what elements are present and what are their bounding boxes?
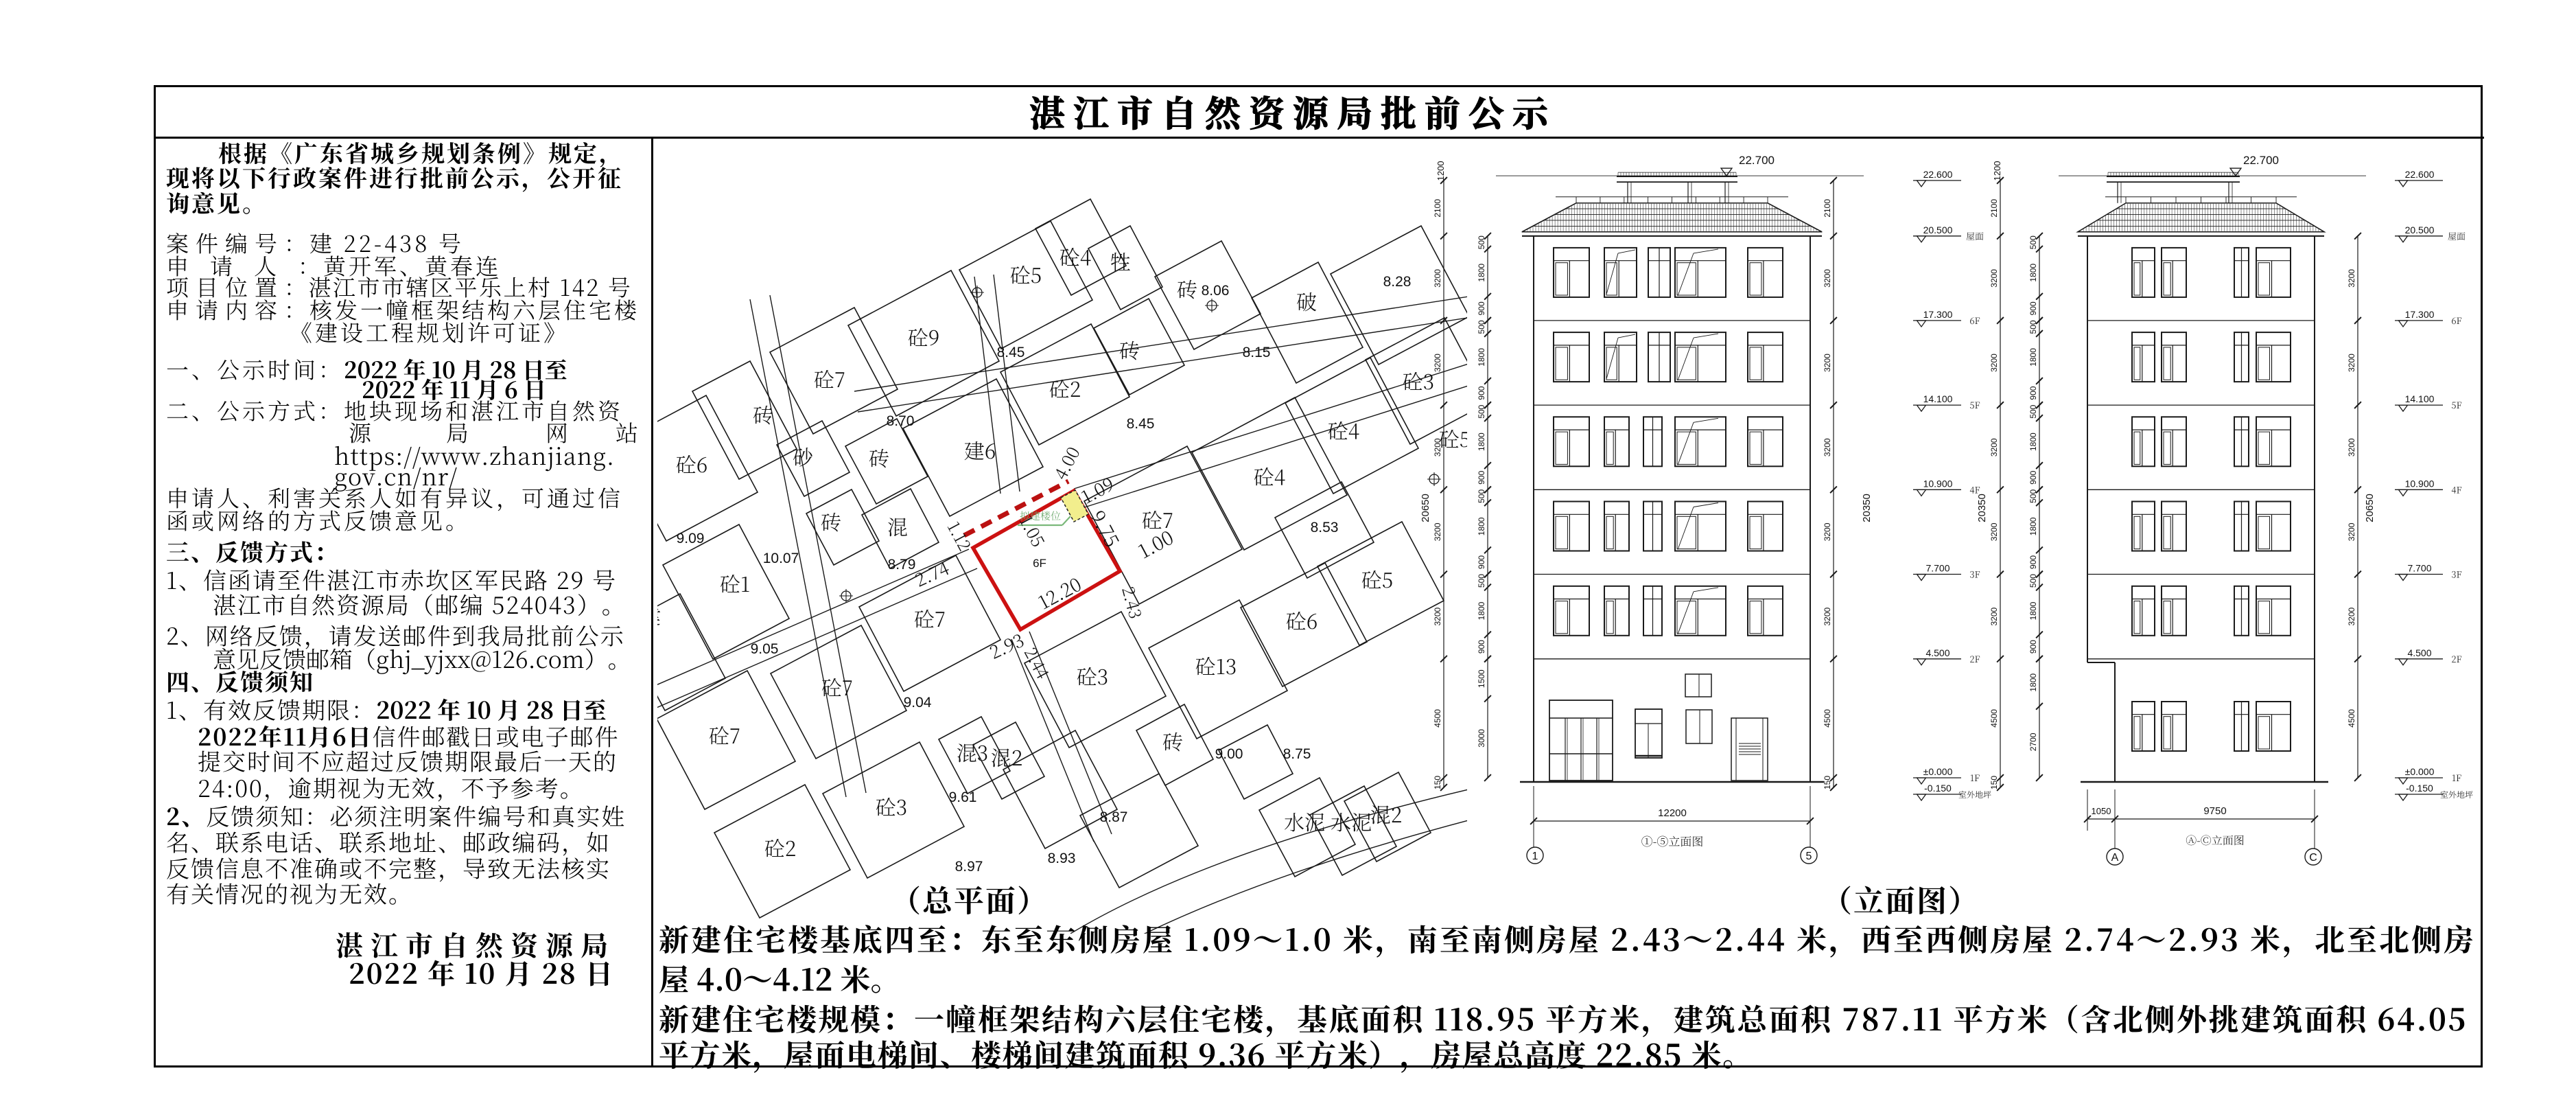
svg-text:屋面: 屋面 [1966, 229, 1984, 242]
svg-text:2.93: 2.93 [985, 627, 1028, 665]
svg-text:500: 500 [1477, 320, 1486, 334]
svg-text:10.900: 10.900 [1923, 478, 1953, 489]
svg-text:砼1: 砼1 [720, 568, 750, 598]
svg-text:4.500: 4.500 [1925, 647, 1949, 658]
svg-text:6F: 6F [2451, 314, 2461, 327]
svg-text:8.79: 8.79 [888, 557, 916, 573]
svg-text:1800: 1800 [2028, 432, 2038, 451]
svg-text:3200: 3200 [2347, 269, 2356, 288]
svg-text:12200: 12200 [1658, 807, 1687, 819]
svg-text:17.300: 17.300 [2405, 309, 2435, 320]
svg-text:-0.150: -0.150 [1924, 783, 1952, 794]
svg-text:砼7: 砼7 [914, 603, 946, 633]
svg-text:3200: 3200 [1823, 354, 1832, 372]
svg-text:900: 900 [1477, 555, 1486, 569]
svg-text:900: 900 [2028, 555, 2038, 569]
svg-text:3200: 3200 [1989, 607, 1999, 625]
svg-text:900: 900 [1477, 386, 1486, 400]
svg-text:7.700: 7.700 [1925, 563, 1949, 574]
svg-text:900: 900 [2028, 470, 2038, 484]
svg-text:14.100: 14.100 [1923, 393, 1953, 404]
svg-text:500: 500 [2028, 320, 2038, 334]
svg-text:±0.000: ±0.000 [1923, 766, 1953, 777]
svg-text:9.04: 9.04 [904, 695, 932, 711]
svg-text:3200: 3200 [1433, 354, 1442, 372]
svg-text:室外地坪: 室外地坪 [2440, 789, 2473, 800]
svg-text:3200: 3200 [2347, 607, 2356, 625]
svg-text:2700: 2700 [2028, 732, 2038, 751]
svg-text:砼5: 砼5 [1010, 259, 1042, 289]
svg-text:900: 900 [1477, 640, 1486, 654]
svg-text:砖: 砖 [1162, 726, 1183, 756]
svg-text:3200: 3200 [1823, 607, 1832, 625]
svg-text:9.61: 9.61 [949, 789, 977, 805]
svg-text:3200: 3200 [1823, 269, 1832, 288]
svg-text:2100: 2100 [1433, 199, 1442, 218]
svg-text:8.45: 8.45 [997, 345, 1025, 360]
svg-text:6F: 6F [1969, 314, 1980, 327]
svg-text:4500: 4500 [1433, 709, 1442, 728]
svg-text:3200: 3200 [2347, 438, 2356, 457]
svg-text:混: 混 [887, 511, 908, 541]
svg-text:22.600: 22.600 [1923, 169, 1953, 180]
svg-text:20.500: 20.500 [1923, 224, 1953, 235]
svg-text:3200: 3200 [1433, 269, 1442, 288]
svg-text:7.700: 7.700 [2407, 563, 2431, 574]
svg-text:2.43: 2.43 [1117, 584, 1149, 621]
svg-text:8.70: 8.70 [887, 413, 915, 429]
svg-text:砼3: 砼3 [1077, 660, 1108, 691]
svg-text:500: 500 [2028, 574, 2038, 588]
svg-text:3200: 3200 [1989, 438, 1999, 457]
svg-text:1800: 1800 [2028, 264, 2038, 282]
svg-text:1F: 1F [2452, 771, 2461, 784]
svg-text:150: 150 [1989, 776, 1999, 789]
svg-text:砂: 砂 [793, 441, 814, 471]
svg-text:900: 900 [2028, 386, 2038, 400]
svg-text:2100: 2100 [1989, 199, 1999, 218]
svg-text:1F: 1F [1970, 771, 1980, 784]
svg-text:砖: 砖 [869, 442, 889, 472]
svg-text:3200: 3200 [1989, 269, 1999, 288]
svg-text:20.500: 20.500 [2405, 224, 2435, 235]
svg-text:3200: 3200 [1989, 354, 1999, 372]
svg-text:砖: 砖 [821, 506, 841, 536]
svg-text:水泥: 水泥 [1331, 806, 1372, 836]
svg-text:9750: 9750 [2203, 805, 2226, 817]
svg-text:1: 1 [1532, 851, 1538, 862]
svg-text:20650: 20650 [2364, 494, 2376, 522]
svg-text:500: 500 [1477, 574, 1486, 588]
svg-text:9.00: 9.00 [1215, 746, 1243, 762]
svg-text:500: 500 [2028, 404, 2038, 418]
svg-text:砼5: 砼5 [1361, 564, 1394, 594]
svg-text:Ⓐ-Ⓒ立面图: Ⓐ-Ⓒ立面图 [2186, 832, 2244, 848]
svg-text:9.09: 9.09 [677, 531, 705, 546]
svg-text:14.100: 14.100 [2405, 393, 2435, 404]
svg-text:8.45: 8.45 [1127, 416, 1155, 432]
svg-text:4500: 4500 [2347, 709, 2356, 728]
svg-text:破: 破 [1296, 286, 1317, 316]
svg-text:3200: 3200 [2347, 522, 2356, 541]
svg-text:-0.150: -0.150 [2406, 783, 2433, 794]
svg-text:5F: 5F [1969, 398, 1980, 411]
svg-text:3000: 3000 [1477, 729, 1486, 748]
svg-text:砼7: 砼7 [709, 719, 740, 750]
svg-text:屋面: 屋面 [2448, 229, 2466, 242]
svg-text:1800: 1800 [1477, 264, 1486, 282]
svg-text:砼6: 砼6 [1286, 605, 1318, 635]
svg-text:建6: 建6 [964, 435, 996, 465]
svg-text:砼2: 砼2 [1049, 373, 1081, 403]
svg-text:1050: 1050 [2092, 806, 2111, 816]
svg-text:1200: 1200 [1436, 161, 1446, 181]
svg-text:4500: 4500 [1823, 709, 1832, 728]
svg-text:4.00: 4.00 [1048, 442, 1086, 483]
svg-text:砼13: 砼13 [1195, 650, 1237, 680]
svg-text:10.900: 10.900 [2405, 478, 2435, 489]
svg-text:1800: 1800 [2028, 601, 2038, 620]
svg-text:20650: 20650 [1420, 494, 1431, 522]
svg-text:8.15: 8.15 [1243, 345, 1271, 360]
svg-text:1800: 1800 [2028, 673, 2038, 692]
svg-text:3200: 3200 [1823, 522, 1832, 541]
svg-text:牲: 牲 [1110, 246, 1131, 276]
svg-text:砼3: 砼3 [876, 791, 907, 821]
svg-text:5: 5 [1806, 851, 1812, 862]
svg-text:±0.000: ±0.000 [2405, 766, 2435, 777]
svg-text:3200: 3200 [1823, 438, 1832, 457]
svg-text:22.600: 22.600 [2405, 169, 2435, 180]
svg-text:8.75: 8.75 [1283, 746, 1311, 762]
svg-text:500: 500 [2028, 235, 2038, 249]
svg-text:2F: 2F [1969, 652, 1980, 665]
svg-text:500: 500 [2028, 489, 2038, 503]
svg-text:150: 150 [1433, 776, 1442, 789]
svg-text:500: 500 [1477, 404, 1486, 418]
svg-text:3200: 3200 [1433, 522, 1442, 541]
svg-text:8.93: 8.93 [1048, 851, 1076, 866]
svg-text:1800: 1800 [2028, 517, 2038, 535]
svg-text:500: 500 [1477, 489, 1486, 503]
svg-text:①-⑤立面图: ①-⑤立面图 [1641, 832, 1704, 849]
svg-text:8.53: 8.53 [1311, 520, 1339, 535]
svg-text:1800: 1800 [1477, 601, 1486, 620]
svg-text:混2: 混2 [1370, 798, 1403, 829]
svg-text:4.500: 4.500 [2407, 647, 2431, 658]
svg-text:1200: 1200 [1992, 161, 2002, 181]
svg-text:17.300: 17.300 [1923, 309, 1953, 320]
svg-text:砼2: 砼2 [764, 832, 797, 862]
svg-text:水泥: 水泥 [1284, 806, 1325, 836]
svg-text:20350: 20350 [1976, 494, 1988, 522]
svg-text:1800: 1800 [2028, 348, 2038, 367]
svg-text:500: 500 [1477, 235, 1486, 249]
svg-text:2100: 2100 [1823, 199, 1832, 218]
svg-text:建: 建 [657, 600, 661, 630]
svg-text:1800: 1800 [1477, 432, 1486, 451]
svg-text:8.97: 8.97 [955, 859, 983, 875]
svg-text:4F: 4F [2451, 483, 2461, 496]
svg-text:3200: 3200 [2347, 354, 2356, 372]
svg-text:8.06: 8.06 [1202, 283, 1230, 299]
svg-text:900: 900 [2028, 301, 2038, 315]
svg-text:8.28: 8.28 [1383, 274, 1412, 290]
svg-text:1800: 1800 [1477, 348, 1486, 367]
svg-text:4500: 4500 [1989, 709, 1999, 728]
svg-text:砼7: 砼7 [1142, 504, 1173, 534]
svg-text:砼4: 砼4 [1254, 461, 1285, 491]
svg-text:砼6: 砼6 [676, 448, 708, 478]
svg-text:900: 900 [1477, 301, 1486, 315]
svg-text:8.87: 8.87 [1100, 809, 1128, 825]
svg-text:砼7: 砼7 [814, 363, 845, 393]
svg-text:C: C [2309, 852, 2317, 864]
svg-text:室外地坪: 室外地坪 [1958, 789, 1991, 800]
svg-text:砖: 砖 [1177, 273, 1197, 303]
svg-text:900: 900 [1477, 470, 1486, 484]
svg-text:混2: 混2 [991, 741, 1023, 772]
svg-text:10.07: 10.07 [763, 551, 799, 566]
svg-text:3200: 3200 [1433, 438, 1442, 457]
svg-text:9.05: 9.05 [751, 641, 779, 657]
svg-text:3200: 3200 [1433, 607, 1442, 625]
svg-text:A: A [2111, 852, 2119, 864]
svg-text:5F: 5F [2451, 398, 2461, 411]
svg-text:砖: 砖 [753, 399, 773, 429]
svg-text:22.700: 22.700 [2243, 154, 2279, 167]
svg-text:砼4: 砼4 [1328, 415, 1359, 445]
svg-text:1500: 1500 [1477, 669, 1486, 688]
svg-text:3F: 3F [1969, 568, 1980, 581]
svg-text:砖: 砖 [1119, 334, 1140, 365]
svg-text:2F: 2F [2451, 652, 2461, 665]
svg-text:900: 900 [2028, 640, 2038, 654]
svg-text:150: 150 [1823, 776, 1832, 789]
svg-text:混3: 混3 [957, 737, 988, 767]
svg-text:砼9: 砼9 [908, 321, 940, 351]
svg-text:砼4: 砼4 [1059, 241, 1091, 271]
svg-text:1800: 1800 [1477, 517, 1486, 535]
svg-text:砼7: 砼7 [821, 671, 853, 702]
svg-text:20350: 20350 [1861, 494, 1873, 522]
svg-text:3200: 3200 [1989, 522, 1999, 541]
svg-text:6F: 6F [1033, 557, 1046, 570]
svg-text:3F: 3F [2451, 568, 2461, 581]
svg-text:22.700: 22.700 [1739, 154, 1775, 167]
